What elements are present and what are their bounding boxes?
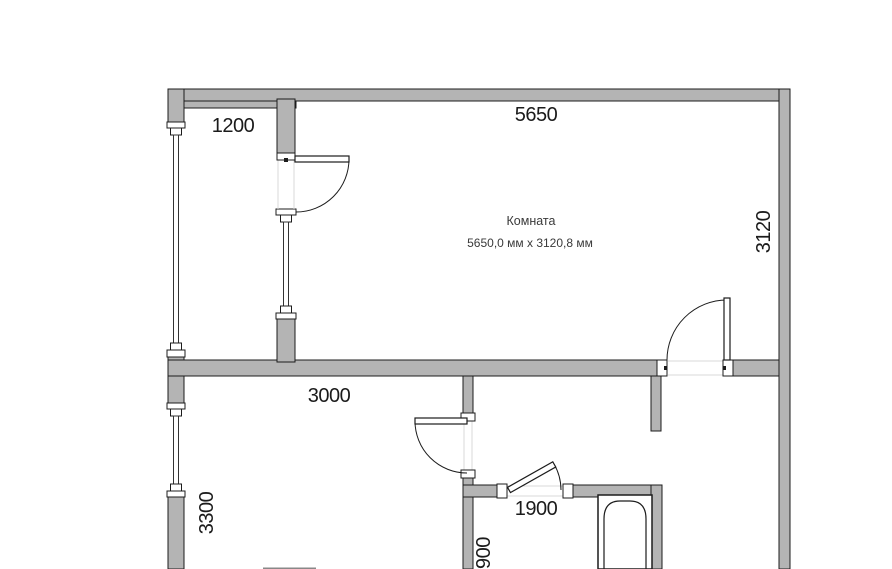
dimension-label-balcony-width: 1200: [212, 116, 255, 136]
middle-wall-right-segment: [731, 360, 779, 376]
dimension-label-room-depth: 3120: [754, 211, 774, 254]
door-swing-arc: [296, 159, 349, 212]
window-end-cap: [171, 484, 182, 491]
door-swing-arc: [415, 421, 467, 473]
hall-stub-wall: [651, 376, 661, 431]
room-door: [657, 298, 733, 376]
balcony-partition-top: [277, 99, 295, 153]
window-end-cap: [276, 209, 296, 215]
door-threshold: [668, 361, 723, 375]
door-swing-arc: [667, 300, 727, 360]
door-leaf: [724, 298, 730, 360]
window-end-cap: [167, 122, 185, 128]
window-end-cap: [281, 306, 292, 313]
door-threshold: [464, 421, 472, 470]
right-wall: [779, 89, 790, 569]
window-end-cap: [167, 350, 185, 357]
balcony-door: [277, 153, 349, 212]
bathtub-rim: [598, 495, 652, 569]
door-leaf: [508, 462, 556, 493]
dimension-label-lower-room-depth: 3300: [197, 492, 217, 535]
hall-partition-top: [463, 376, 473, 413]
balcony-partition-bottom: [277, 319, 295, 362]
left-wall-bottom-pier: [168, 497, 184, 569]
window-left-lower: [167, 403, 185, 497]
floor-plan-canvas: 5650 1200 3120 3000 3300 1900 900 Комнат…: [0, 0, 892, 569]
door-jamb: [461, 470, 475, 478]
window-end-cap: [167, 491, 185, 497]
dimension-label-top-width: 5650: [515, 105, 558, 125]
bathroom-door: [497, 462, 573, 498]
interior-walls: [168, 99, 779, 569]
door-jamb: [497, 484, 507, 498]
door-threshold: [278, 160, 294, 209]
window-glass-line: [174, 135, 179, 343]
hinge-notch: [723, 366, 726, 370]
window-end-cap: [281, 215, 292, 222]
window-end-cap: [167, 403, 185, 409]
door-jamb: [563, 484, 573, 498]
window-end-cap: [171, 343, 182, 350]
floor-plan-drawing: [0, 0, 892, 569]
hall-door: [415, 413, 475, 478]
room-name-label: Комната: [507, 215, 556, 228]
dimension-label-bathroom-depth: 900: [474, 537, 494, 569]
top-wall: [172, 89, 790, 101]
window-glass-line: [284, 222, 289, 306]
dimension-label-lower-room-width: 3000: [308, 386, 351, 406]
window-glass-line: [174, 416, 179, 484]
window-end-cap: [171, 128, 182, 135]
window-end-cap: [171, 409, 182, 416]
door-leaf: [415, 418, 467, 424]
window-end-cap: [276, 313, 296, 319]
hinge-notch: [284, 158, 288, 162]
window-left-upper: [167, 122, 185, 357]
door-leaf: [295, 156, 349, 162]
dimension-label-bathroom-width: 1900: [515, 499, 558, 519]
left-wall-top-pier: [168, 89, 184, 122]
room-size-label: 5650,0 мм x 3120,8 мм: [467, 237, 593, 249]
balcony-block-window: [276, 209, 296, 319]
hinge-notch: [664, 366, 667, 370]
bathtub: [598, 495, 652, 569]
middle-wall-left-segment: [168, 360, 660, 376]
